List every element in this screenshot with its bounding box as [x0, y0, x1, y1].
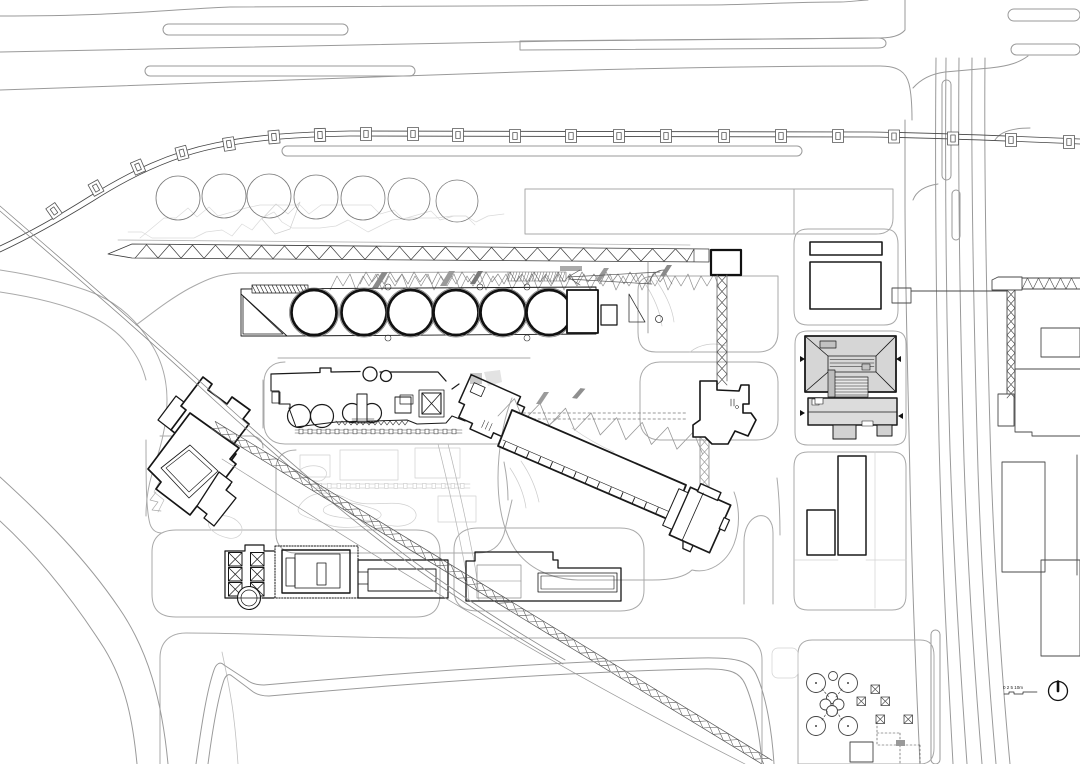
- svg-text:0 2 5 10m: 0 2 5 10m: [1003, 685, 1023, 690]
